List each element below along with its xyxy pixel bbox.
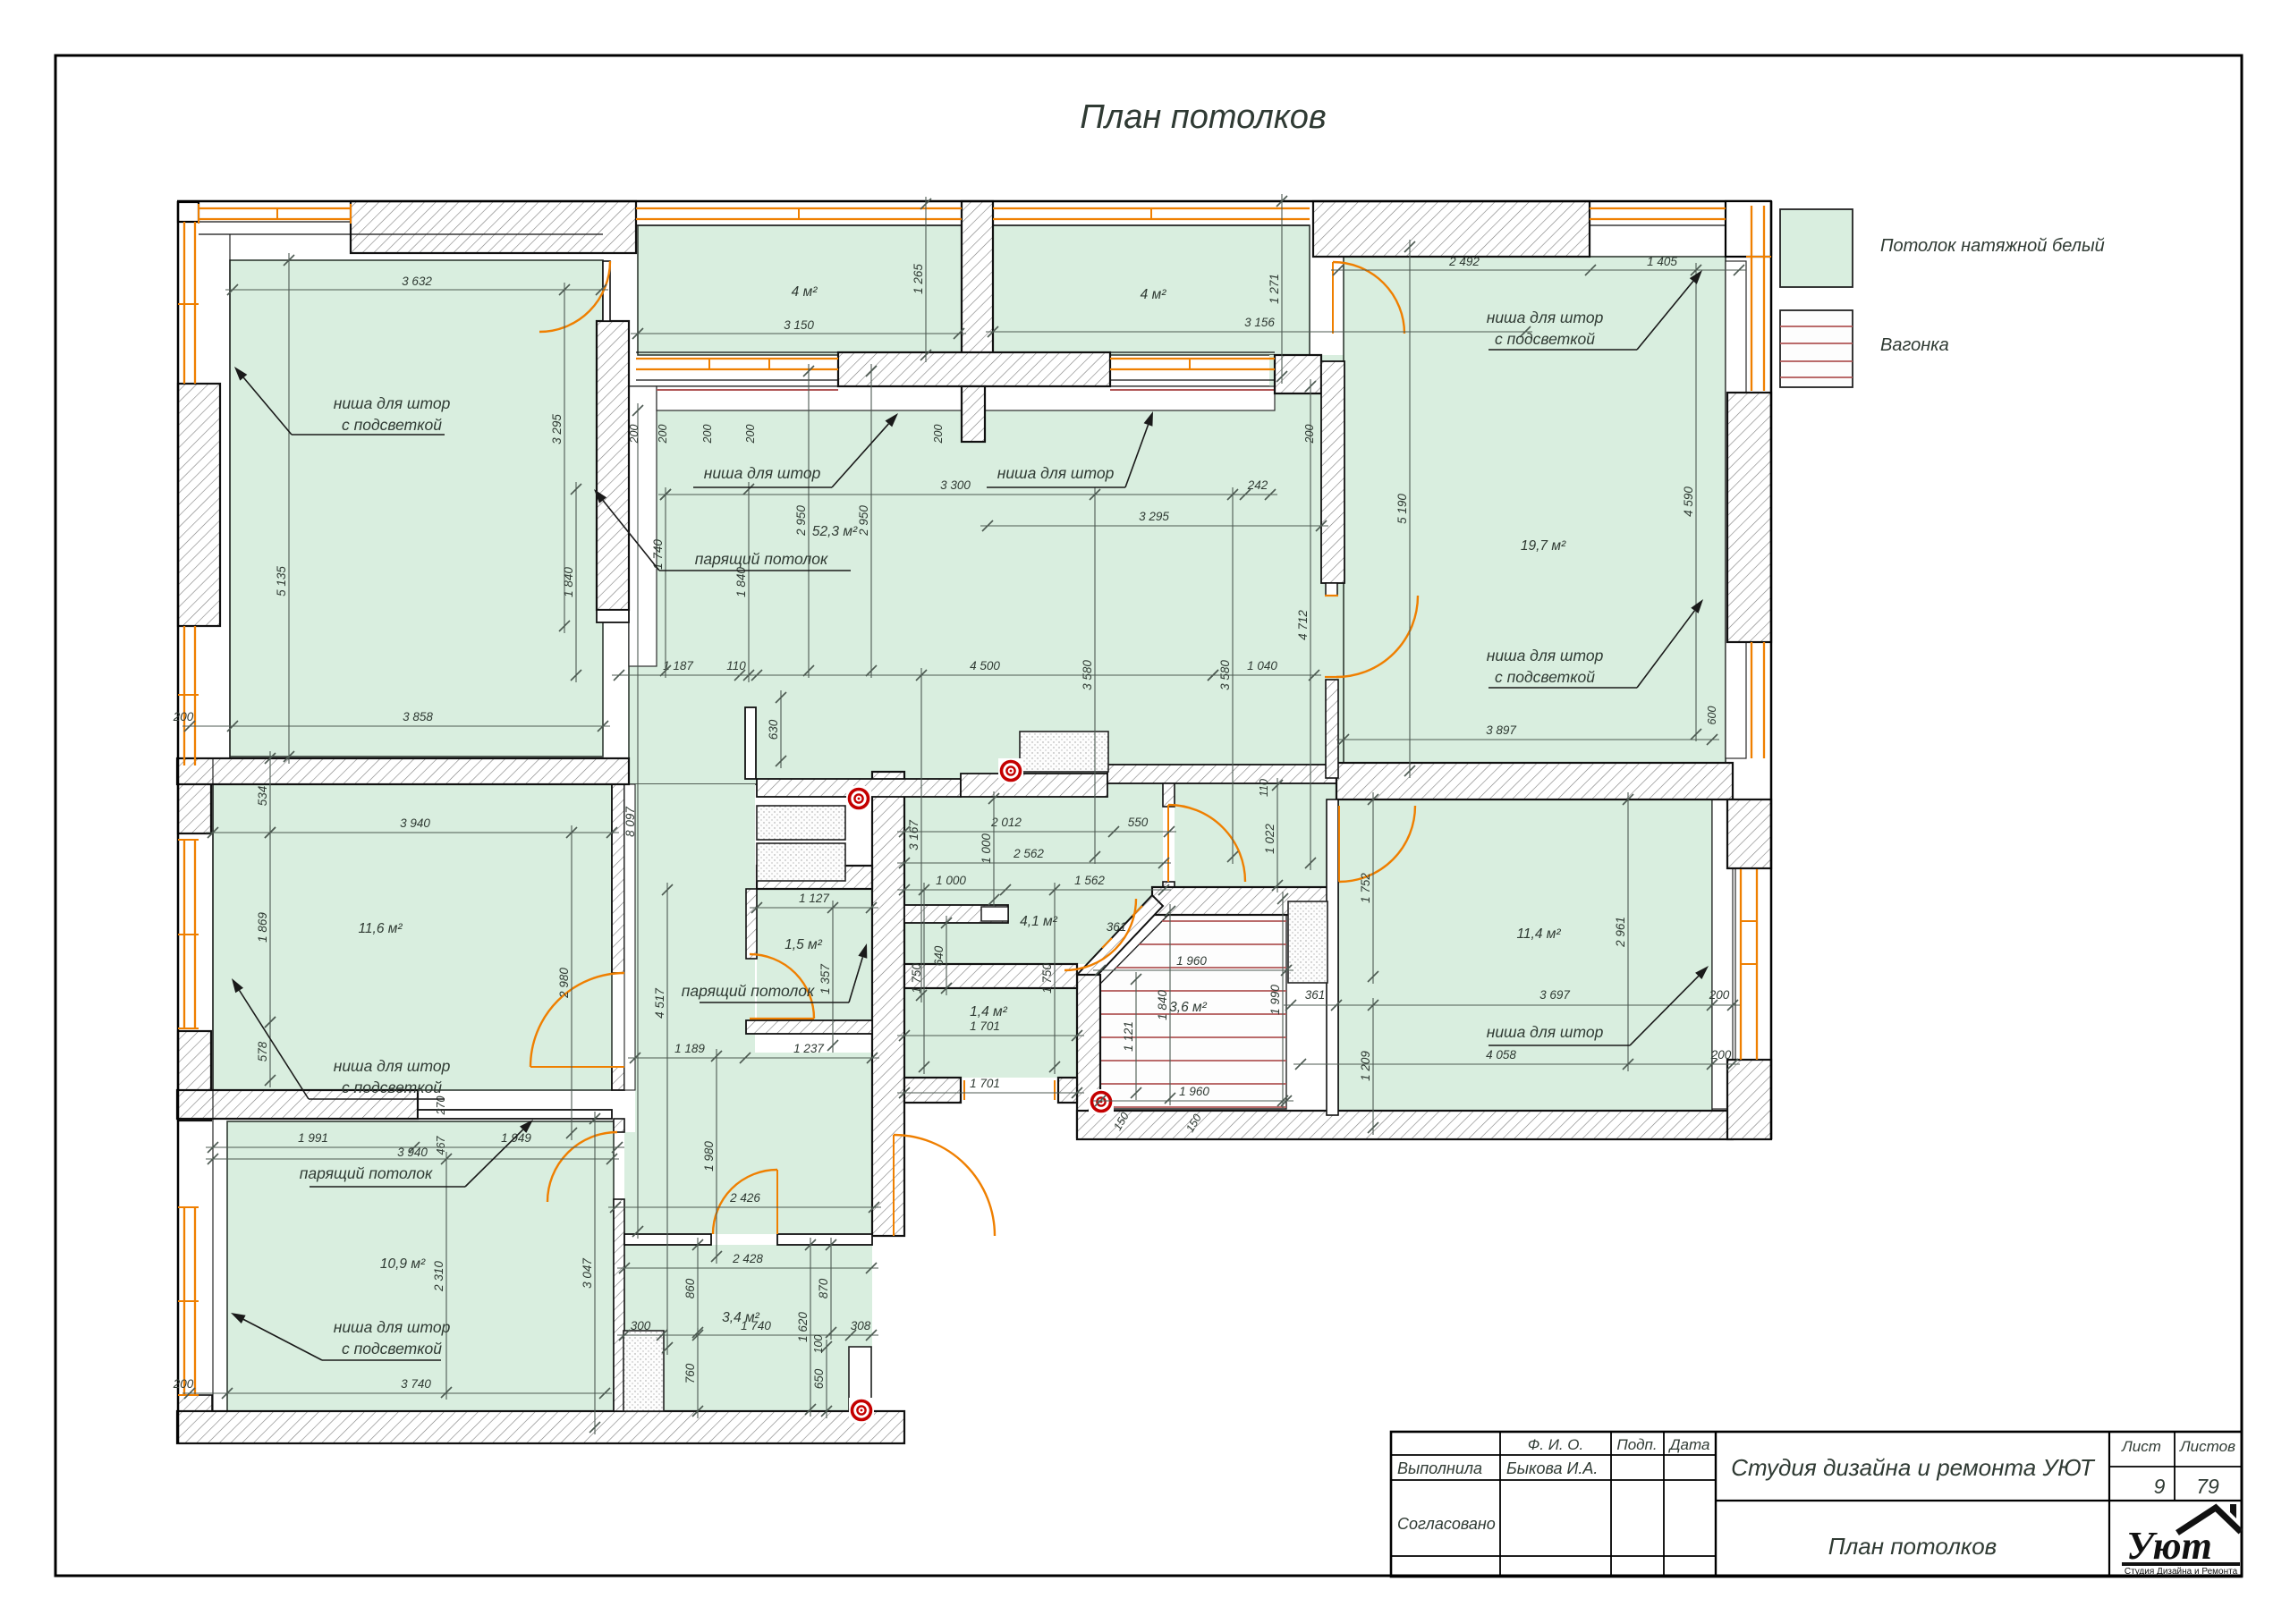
svg-text:1 840: 1 840 bbox=[1156, 990, 1169, 1020]
svg-text:200: 200 bbox=[173, 1377, 194, 1391]
svg-text:242: 242 bbox=[1247, 478, 1268, 492]
svg-text:2 562: 2 562 bbox=[1013, 847, 1044, 860]
svg-text:ниша для штор: ниша для штор bbox=[704, 464, 821, 482]
svg-text:1 701: 1 701 bbox=[970, 1019, 1000, 1033]
svg-text:1 357: 1 357 bbox=[818, 964, 832, 994]
svg-text:2 428: 2 428 bbox=[732, 1252, 763, 1265]
svg-text:100: 100 bbox=[812, 1335, 825, 1354]
svg-text:с подсветкой: с подсветкой bbox=[342, 1340, 442, 1358]
svg-text:3 858: 3 858 bbox=[403, 710, 433, 723]
svg-text:1 869: 1 869 bbox=[256, 912, 269, 943]
svg-text:1 620: 1 620 bbox=[796, 1312, 810, 1342]
svg-text:110: 110 bbox=[726, 659, 746, 672]
svg-text:200: 200 bbox=[628, 425, 640, 444]
svg-text:1 000: 1 000 bbox=[936, 874, 966, 887]
svg-text:200: 200 bbox=[657, 425, 669, 444]
svg-text:110: 110 bbox=[1258, 779, 1270, 797]
svg-text:308: 308 bbox=[851, 1319, 871, 1332]
svg-text:550: 550 bbox=[1128, 816, 1149, 829]
svg-text:Выполнила: Выполнила bbox=[1397, 1459, 1482, 1477]
svg-text:10,9 м²: 10,9 м² bbox=[380, 1256, 426, 1272]
svg-text:3 150: 3 150 bbox=[784, 318, 814, 332]
svg-text:с подсветкой: с подсветкой bbox=[1495, 330, 1595, 348]
svg-text:1 750: 1 750 bbox=[910, 963, 923, 994]
svg-text:1 991: 1 991 bbox=[298, 1131, 328, 1145]
svg-text:1 000: 1 000 bbox=[980, 833, 993, 864]
svg-text:Подп.: Подп. bbox=[1616, 1436, 1657, 1453]
svg-text:9: 9 bbox=[2154, 1475, 2166, 1498]
svg-text:Быкова И.А.: Быкова И.А. bbox=[1506, 1459, 1598, 1477]
svg-text:1 990: 1 990 bbox=[1268, 985, 1282, 1015]
svg-text:650: 650 bbox=[812, 1368, 826, 1389]
svg-text:1 752: 1 752 bbox=[1359, 873, 1372, 903]
svg-text:3 940: 3 940 bbox=[397, 1146, 428, 1159]
svg-text:ниша для штор: ниша для штор bbox=[334, 1057, 451, 1075]
svg-text:1 237: 1 237 bbox=[793, 1042, 824, 1055]
svg-text:1 960: 1 960 bbox=[1176, 954, 1207, 968]
svg-text:19,7 м²: 19,7 м² bbox=[1521, 538, 1566, 554]
svg-text:3 632: 3 632 bbox=[402, 275, 432, 288]
svg-text:Студия Дизайна и Ремонта: Студия Дизайна и Ремонта bbox=[2125, 1567, 2238, 1577]
svg-text:600: 600 bbox=[1706, 706, 1718, 725]
svg-text:2 950: 2 950 bbox=[857, 505, 870, 537]
svg-text:Листов: Листов bbox=[2179, 1438, 2235, 1455]
svg-text:760: 760 bbox=[683, 1363, 697, 1383]
svg-text:ниша для штор: ниша для штор bbox=[997, 464, 1115, 482]
svg-text:200: 200 bbox=[1709, 988, 1730, 1002]
svg-text:1 265: 1 265 bbox=[912, 264, 925, 294]
svg-text:Дата: Дата bbox=[1668, 1436, 1710, 1453]
svg-text:парящий потолок: парящий потолок bbox=[682, 982, 815, 1000]
svg-text:с подсветкой: с подсветкой bbox=[342, 416, 442, 434]
svg-text:52,3 м²: 52,3 м² bbox=[812, 524, 858, 539]
svg-text:Студия дизайна и ремонта УЮТ: Студия дизайна и ремонта УЮТ bbox=[1731, 1454, 2096, 1481]
svg-text:534: 534 bbox=[256, 786, 269, 807]
svg-text:860: 860 bbox=[683, 1278, 697, 1298]
svg-text:ниша для штор: ниша для штор bbox=[1487, 309, 1604, 326]
svg-text:3 580: 3 580 bbox=[1218, 660, 1232, 690]
svg-text:3 295: 3 295 bbox=[550, 414, 564, 444]
svg-text:361: 361 bbox=[1305, 988, 1326, 1002]
svg-text:1 271: 1 271 bbox=[1268, 274, 1281, 304]
svg-text:2 310: 2 310 bbox=[432, 1261, 445, 1292]
svg-text:200: 200 bbox=[1303, 425, 1316, 444]
svg-text:4 712: 4 712 bbox=[1296, 610, 1310, 640]
svg-text:1 189: 1 189 bbox=[674, 1042, 705, 1055]
svg-text:5 190: 5 190 bbox=[1395, 494, 1409, 524]
svg-text:300: 300 bbox=[631, 1319, 651, 1332]
svg-text:План потолков: План потолков bbox=[1080, 98, 1326, 136]
svg-text:Лист: Лист bbox=[2121, 1438, 2161, 1455]
svg-text:1,4 м²: 1,4 м² bbox=[970, 1004, 1007, 1019]
svg-text:578: 578 bbox=[256, 1041, 269, 1062]
svg-text:640: 640 bbox=[932, 945, 946, 966]
svg-text:1 127: 1 127 bbox=[799, 892, 829, 905]
svg-text:3 897: 3 897 bbox=[1486, 723, 1516, 737]
svg-text:200: 200 bbox=[932, 425, 945, 444]
svg-text:4 м²: 4 м² bbox=[792, 284, 818, 300]
svg-text:Вагонка: Вагонка bbox=[1880, 335, 1949, 355]
svg-text:1 740: 1 740 bbox=[651, 539, 665, 570]
svg-text:870: 870 bbox=[817, 1278, 830, 1298]
svg-text:1 405: 1 405 bbox=[1647, 255, 1677, 268]
svg-text:с подсветкой: с подсветкой bbox=[342, 1078, 442, 1096]
svg-text:3 580: 3 580 bbox=[1081, 660, 1094, 690]
svg-text:4 500: 4 500 bbox=[970, 659, 1000, 672]
svg-text:с подсветкой: с подсветкой bbox=[1495, 668, 1595, 686]
svg-text:3 156: 3 156 bbox=[1244, 316, 1275, 329]
svg-text:ниша для штор: ниша для штор bbox=[334, 1318, 451, 1336]
svg-text:1,5 м²: 1,5 м² bbox=[785, 937, 822, 952]
svg-text:1 980: 1 980 bbox=[702, 1141, 716, 1171]
svg-text:2 012: 2 012 bbox=[990, 816, 1022, 829]
svg-text:3 167: 3 167 bbox=[907, 820, 920, 850]
svg-text:200: 200 bbox=[173, 710, 194, 723]
svg-text:ниша для штор: ниша для штор bbox=[334, 394, 451, 412]
svg-text:1 121: 1 121 bbox=[1122, 1021, 1135, 1052]
svg-text:3 295: 3 295 bbox=[1139, 510, 1169, 523]
svg-text:79: 79 bbox=[2196, 1475, 2219, 1498]
svg-text:3,4 м²: 3,4 м² bbox=[722, 1310, 759, 1325]
svg-text:3 940: 3 940 bbox=[400, 816, 430, 830]
svg-text:4 м²: 4 м² bbox=[1141, 287, 1167, 302]
svg-text:1 840: 1 840 bbox=[562, 567, 575, 597]
svg-text:План потолков: План потолков bbox=[1828, 1533, 1997, 1560]
svg-text:3 047: 3 047 bbox=[581, 1258, 594, 1289]
svg-text:2 980: 2 980 bbox=[557, 968, 571, 999]
svg-text:1 701: 1 701 bbox=[970, 1077, 1000, 1090]
svg-text:467: 467 bbox=[435, 1136, 447, 1155]
svg-text:2 961: 2 961 bbox=[1614, 917, 1627, 948]
svg-text:8 097: 8 097 bbox=[623, 807, 637, 837]
svg-text:1 187: 1 187 bbox=[663, 659, 693, 672]
svg-text:Согласовано: Согласовано bbox=[1397, 1515, 1496, 1533]
svg-text:1 949: 1 949 bbox=[501, 1131, 531, 1145]
svg-text:200: 200 bbox=[1710, 1048, 1732, 1062]
svg-text:2 426: 2 426 bbox=[729, 1191, 760, 1205]
svg-text:3 740: 3 740 bbox=[401, 1377, 431, 1391]
svg-text:361: 361 bbox=[1107, 920, 1127, 934]
svg-text:2 492: 2 492 bbox=[1448, 255, 1480, 268]
svg-text:1 562: 1 562 bbox=[1074, 874, 1105, 887]
svg-text:200: 200 bbox=[744, 425, 757, 444]
svg-text:11,4 м²: 11,4 м² bbox=[1516, 926, 1561, 942]
svg-text:4 517: 4 517 bbox=[653, 988, 666, 1019]
svg-text:1 040: 1 040 bbox=[1247, 659, 1277, 672]
svg-text:1 750: 1 750 bbox=[1040, 963, 1054, 994]
svg-text:Потолок натяжной белый: Потолок натяжной белый bbox=[1880, 236, 2105, 256]
svg-text:630: 630 bbox=[767, 719, 780, 740]
svg-text:1 209: 1 209 bbox=[1359, 1051, 1372, 1081]
svg-text:парящий потолок: парящий потолок bbox=[300, 1164, 433, 1182]
svg-text:1 960: 1 960 bbox=[1179, 1085, 1209, 1098]
svg-text:ниша для штор: ниша для штор bbox=[1487, 647, 1604, 664]
svg-text:5 135: 5 135 bbox=[275, 566, 288, 596]
svg-text:Уют: Уют bbox=[2126, 1524, 2212, 1568]
svg-text:парящий потолок: парящий потолок bbox=[695, 550, 828, 568]
svg-text:Ф. И. О.: Ф. И. О. bbox=[1528, 1436, 1584, 1453]
svg-text:ниша для штор: ниша для штор bbox=[1487, 1023, 1604, 1041]
svg-text:3 697: 3 697 bbox=[1539, 988, 1570, 1002]
svg-text:4 590: 4 590 bbox=[1682, 486, 1695, 517]
svg-text:200: 200 bbox=[701, 425, 714, 444]
svg-text:3 300: 3 300 bbox=[940, 478, 971, 492]
svg-text:3,6 м²: 3,6 м² bbox=[1169, 1000, 1207, 1015]
svg-text:11,6 м²: 11,6 м² bbox=[358, 921, 403, 936]
svg-text:4,1 м²: 4,1 м² bbox=[1020, 914, 1057, 929]
svg-text:2 950: 2 950 bbox=[794, 505, 808, 537]
svg-text:1 022: 1 022 bbox=[1263, 824, 1276, 854]
svg-text:4 058: 4 058 bbox=[1486, 1048, 1516, 1062]
